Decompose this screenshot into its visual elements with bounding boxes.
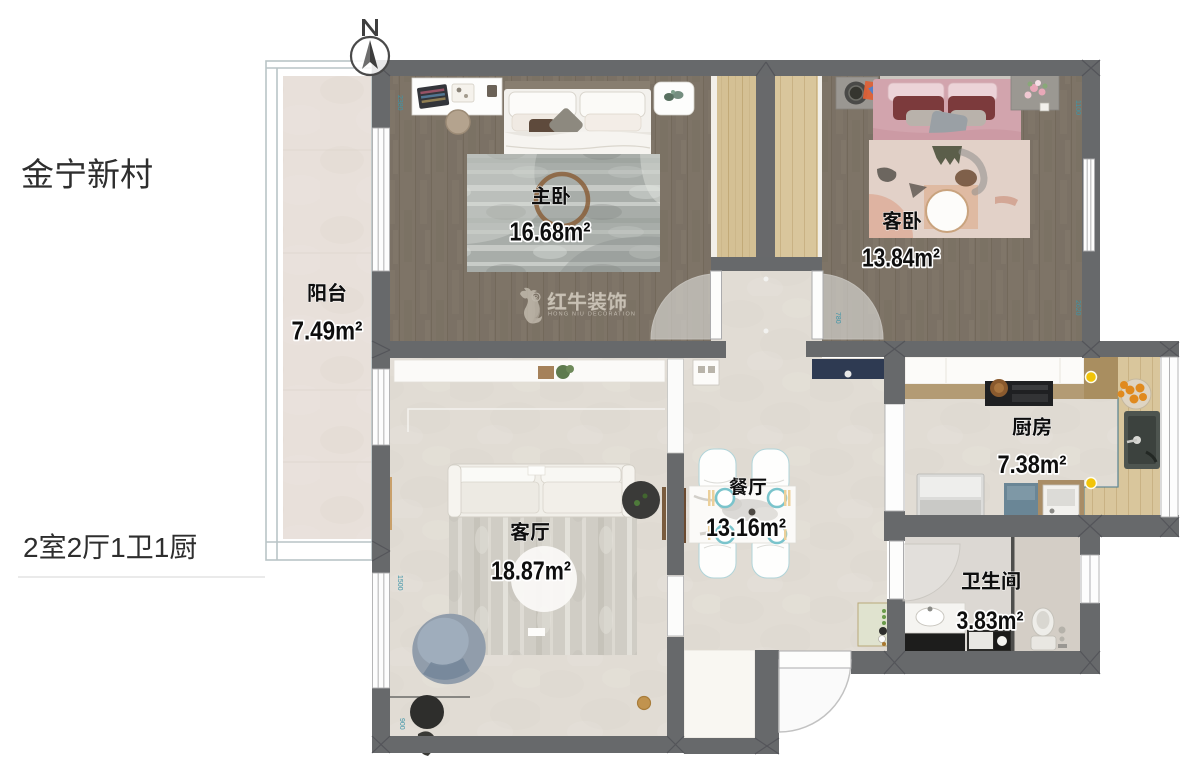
svg-text:HONG NIU DECORATION: HONG NIU DECORATION <box>548 312 636 318</box>
svg-text:1: 1 <box>154 532 170 563</box>
svg-text:3.83m²: 3.83m² <box>957 607 1024 635</box>
svg-text:2620: 2620 <box>1074 300 1081 316</box>
svg-text:780: 780 <box>834 312 841 324</box>
svg-text:2: 2 <box>67 532 83 563</box>
svg-text:1100: 1100 <box>1074 100 1081 115</box>
svg-text:900: 900 <box>398 718 405 730</box>
svg-text:1500: 1500 <box>396 575 403 591</box>
svg-text:2380: 2380 <box>396 95 403 111</box>
svg-text:18.87m²: 18.87m² <box>491 555 571 585</box>
svg-text:7.49m²: 7.49m² <box>292 315 363 345</box>
svg-text:R: R <box>534 296 539 302</box>
svg-text:7.38m²: 7.38m² <box>998 451 1067 479</box>
svg-text:13.16m²: 13.16m² <box>706 514 786 542</box>
svg-text:13.84m²: 13.84m² <box>862 242 940 272</box>
svg-text:1: 1 <box>110 532 126 563</box>
svg-text:2: 2 <box>23 532 39 563</box>
svg-text:16.68m²: 16.68m² <box>510 216 591 246</box>
